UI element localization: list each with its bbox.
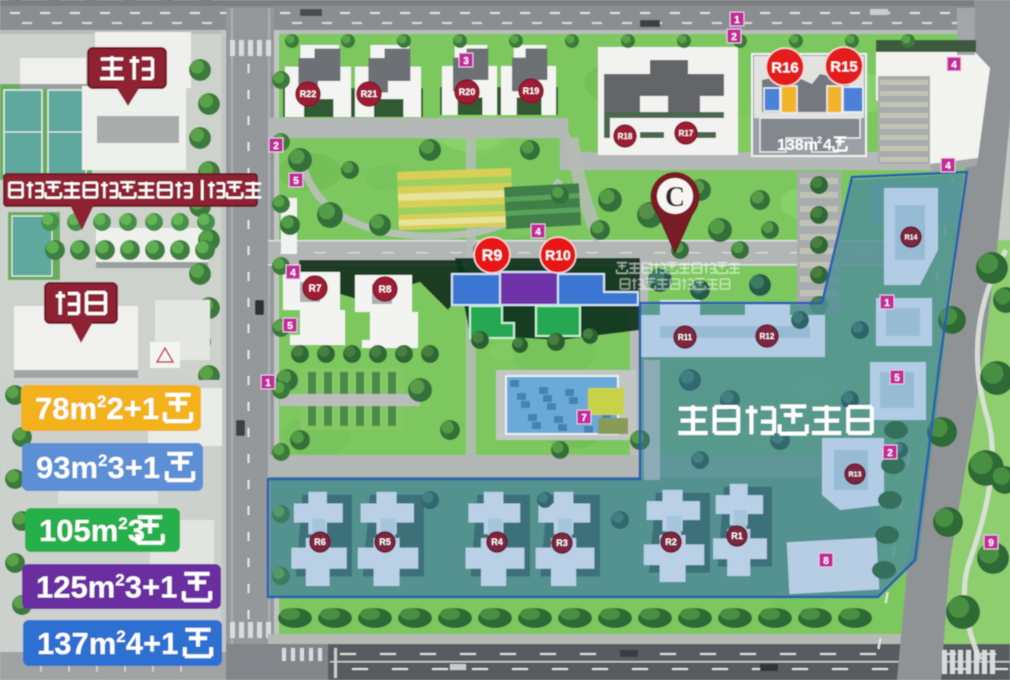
svg-text:5: 5 — [894, 373, 900, 384]
svg-text:R21: R21 — [361, 89, 378, 99]
svg-text:4: 4 — [823, 137, 832, 154]
svg-text:138m: 138m — [777, 137, 818, 154]
svg-text:R5: R5 — [379, 537, 391, 547]
svg-text:2: 2 — [273, 141, 279, 152]
svg-text:125m23+1: 125m23+1 — [36, 570, 177, 605]
svg-text:R7: R7 — [309, 284, 322, 295]
svg-text:4: 4 — [951, 60, 957, 71]
svg-text:R4: R4 — [491, 537, 503, 547]
svg-text:R15: R15 — [830, 58, 858, 75]
svg-text:R18: R18 — [618, 132, 633, 141]
svg-text:R10: R10 — [545, 247, 571, 263]
svg-text:R22: R22 — [300, 89, 317, 99]
svg-text:4: 4 — [945, 161, 951, 172]
svg-text:R17: R17 — [679, 129, 694, 138]
svg-text:7: 7 — [581, 413, 587, 424]
svg-text:R13: R13 — [849, 471, 862, 478]
svg-text:5: 5 — [293, 176, 299, 187]
svg-text:4: 4 — [535, 227, 541, 238]
svg-text:2: 2 — [817, 135, 822, 145]
svg-text:R19: R19 — [523, 86, 540, 96]
svg-text:R8: R8 — [379, 285, 392, 296]
svg-text:R6: R6 — [314, 537, 326, 547]
svg-text:8: 8 — [823, 556, 829, 567]
svg-text:1: 1 — [734, 15, 740, 26]
svg-text:137m24+1: 137m24+1 — [37, 626, 178, 661]
svg-text:9: 9 — [988, 538, 994, 549]
svg-text:R3: R3 — [556, 538, 568, 548]
svg-text:R14: R14 — [905, 234, 918, 241]
svg-text:R2: R2 — [665, 537, 677, 547]
svg-text:R12: R12 — [760, 332, 775, 341]
svg-text:R11: R11 — [678, 333, 693, 342]
svg-text:5: 5 — [287, 321, 293, 332]
svg-text:R16: R16 — [771, 59, 799, 76]
svg-text:3: 3 — [463, 56, 469, 67]
svg-text:105m23: 105m23 — [39, 513, 145, 548]
svg-text:2: 2 — [887, 448, 893, 459]
svg-text:R9: R9 — [482, 248, 503, 265]
svg-text:1: 1 — [265, 378, 271, 389]
svg-text:C: C — [665, 182, 685, 213]
svg-text:R20: R20 — [459, 87, 476, 97]
svg-text:1: 1 — [884, 298, 890, 309]
svg-text:2: 2 — [731, 32, 737, 43]
svg-text:4: 4 — [290, 268, 296, 279]
svg-text:R1: R1 — [731, 531, 743, 541]
